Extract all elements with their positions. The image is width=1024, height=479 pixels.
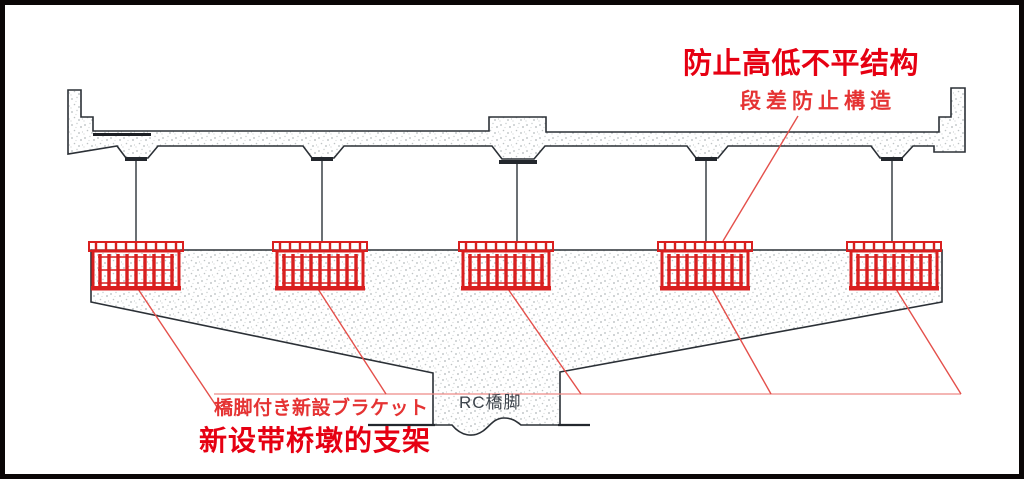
subtitle-step-prevention-jp: 段差防止構造 xyxy=(740,90,896,113)
bridge-diagram-canvas: 防止高低不平结构 段差防止構造 橋脚付き新設ブラケット 新设带桥墩的支架 RC橋… xyxy=(0,0,1024,479)
label-rc-pier: RC橋脚 xyxy=(459,394,522,413)
label-new-bracket-jp: 橋脚付き新設ブラケット xyxy=(214,399,429,420)
support-columns xyxy=(136,161,892,243)
deck-pavement-line xyxy=(93,133,151,136)
title-step-prevention-cn: 防止高低不平结构 xyxy=(683,49,919,81)
label-new-bracket-cn: 新设带桥墩的支架 xyxy=(199,426,431,457)
